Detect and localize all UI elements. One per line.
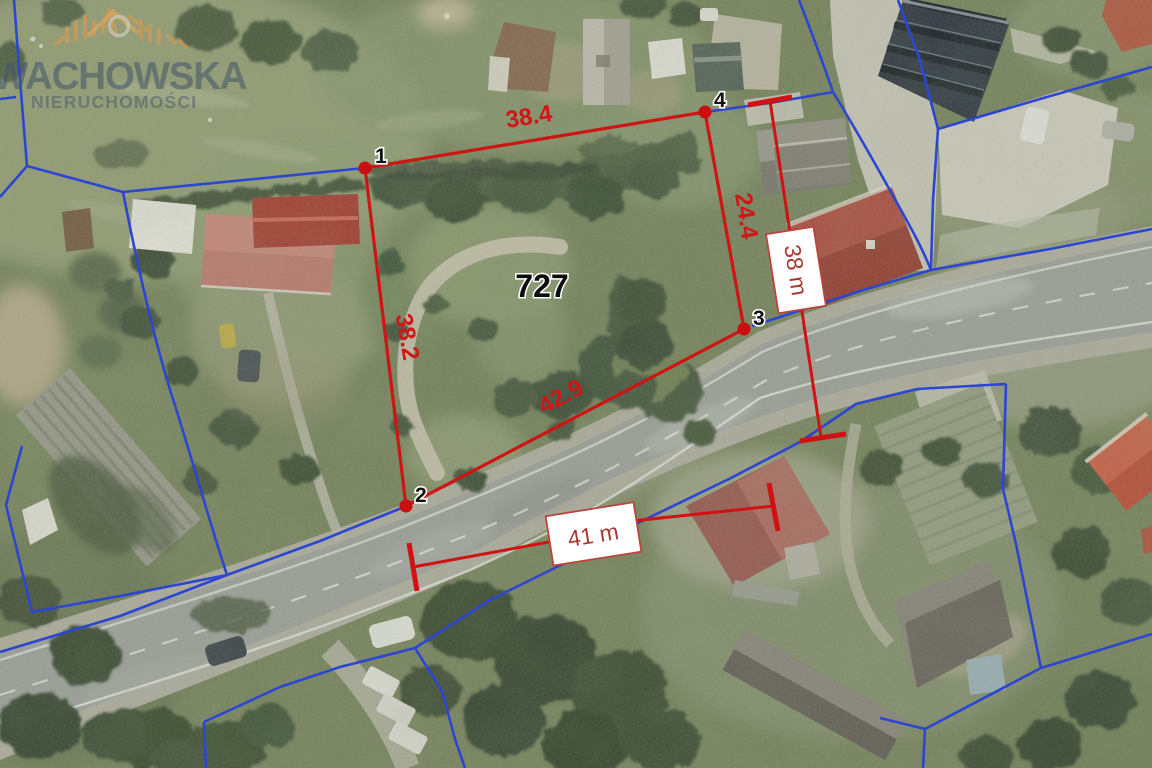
svg-text:3: 3	[753, 307, 765, 330]
svg-text:NIERUCHOMOŚCI: NIERUCHOMOŚCI	[31, 91, 197, 112]
svg-text:1: 1	[375, 145, 387, 168]
svg-text:2: 2	[415, 484, 427, 507]
svg-text:4: 4	[714, 89, 726, 112]
svg-text:727: 727	[515, 268, 568, 304]
